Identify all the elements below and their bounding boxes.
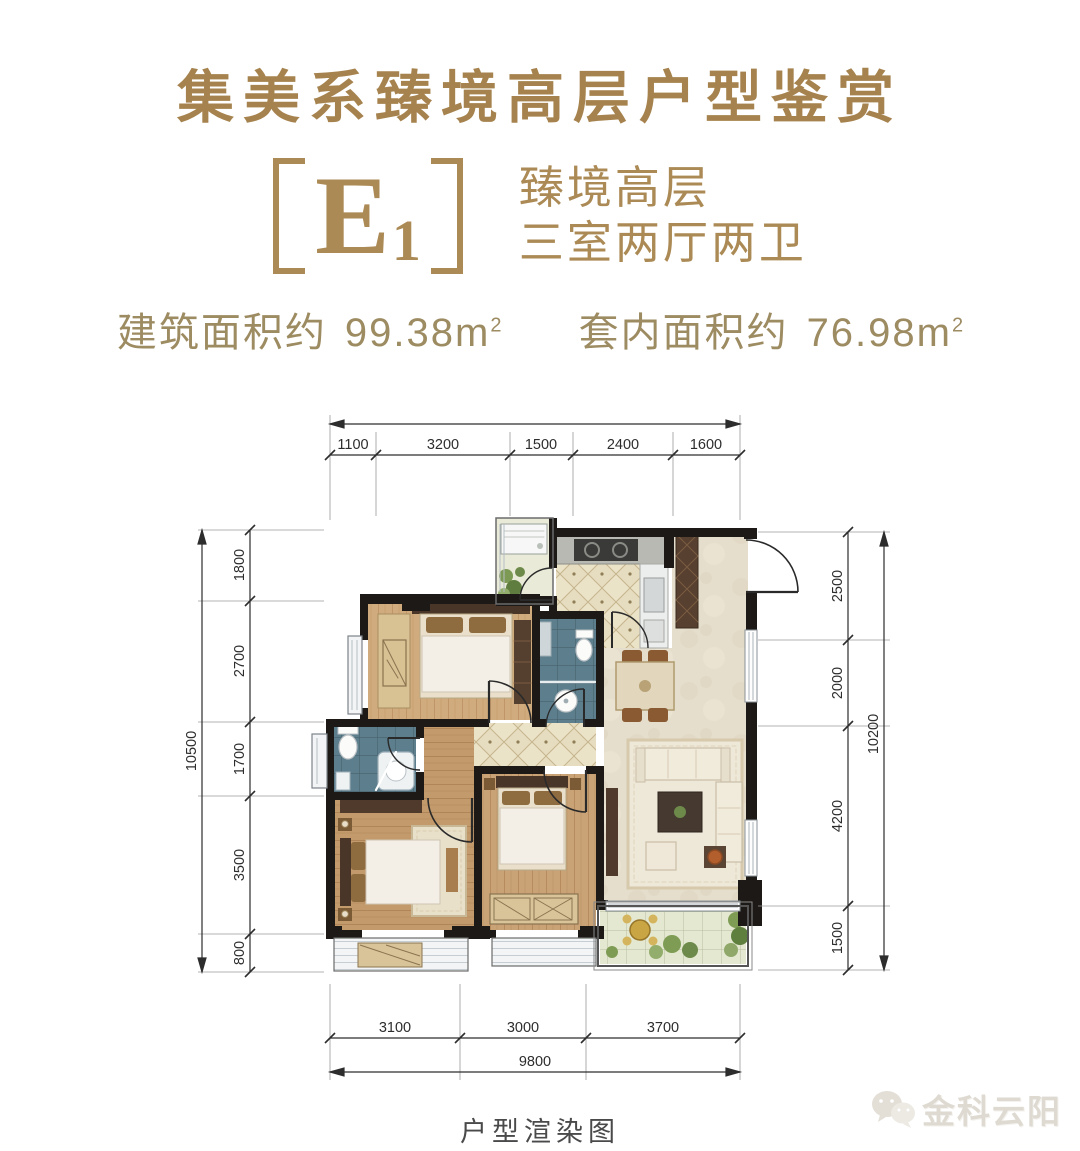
dim-top-3: 1500 <box>525 437 557 453</box>
room-corridor <box>424 723 474 800</box>
stove <box>574 539 638 561</box>
dim-right-2: 2000 <box>830 667 846 699</box>
bath1-toilet <box>576 639 592 661</box>
dining-chair <box>622 708 642 722</box>
dim-top-2: 3200 <box>427 437 459 453</box>
wechat-icon <box>870 1089 916 1129</box>
poster-page: 集美系臻境高层户型鉴赏 E 1 臻境高层 三室两厅两卫 建筑面积约99.38m2… <box>0 0 1080 1151</box>
dim-left-5: 800 <box>232 941 248 965</box>
dim-right-3: 4200 <box>830 800 846 832</box>
washing-machine <box>501 524 547 554</box>
dining-chair <box>648 708 668 722</box>
kitchen-sink <box>644 578 664 612</box>
bed3-headboard <box>496 776 568 788</box>
armchair <box>646 842 676 870</box>
room-hallway <box>474 723 596 766</box>
balcony-table <box>630 920 650 940</box>
dim-left-3: 1700 <box>232 743 248 775</box>
bath2-toilet <box>339 735 357 759</box>
master-headboard <box>340 838 351 906</box>
dim-left-1: 1800 <box>232 549 248 581</box>
watermark: 金科云阳 <box>870 1085 1062 1133</box>
dim-right-1: 2500 <box>830 570 846 602</box>
master-bed <box>366 840 440 904</box>
sofa-main <box>642 748 724 780</box>
tv-console <box>606 788 618 876</box>
bath2-sink <box>336 772 350 790</box>
dim-top-1: 1100 <box>337 437 368 453</box>
dim-left-total: 10500 <box>184 731 200 771</box>
dim-left-4: 3500 <box>232 849 248 881</box>
dim-right-4: 1500 <box>830 922 846 954</box>
master-bench <box>446 848 458 892</box>
dim-bottom-1: 3100 <box>379 1020 411 1036</box>
master-tv-cabinet <box>340 800 422 813</box>
floor-plan: 1100 3200 1500 2400 1600 1800 2700 1700 … <box>0 0 1080 1151</box>
dim-right-total: 10200 <box>866 714 882 754</box>
dim-bottom-3: 3700 <box>647 1020 679 1036</box>
dim-top-5: 1600 <box>690 437 722 453</box>
watermark-label: 金科云阳 <box>922 1085 1062 1133</box>
dim-bottom-2: 3000 <box>507 1020 539 1036</box>
dim-left-2: 2700 <box>232 645 248 677</box>
dim-top-4: 2400 <box>607 437 639 453</box>
floor-lamp <box>708 850 722 864</box>
dim-bottom-total: 9800 <box>519 1054 551 1070</box>
